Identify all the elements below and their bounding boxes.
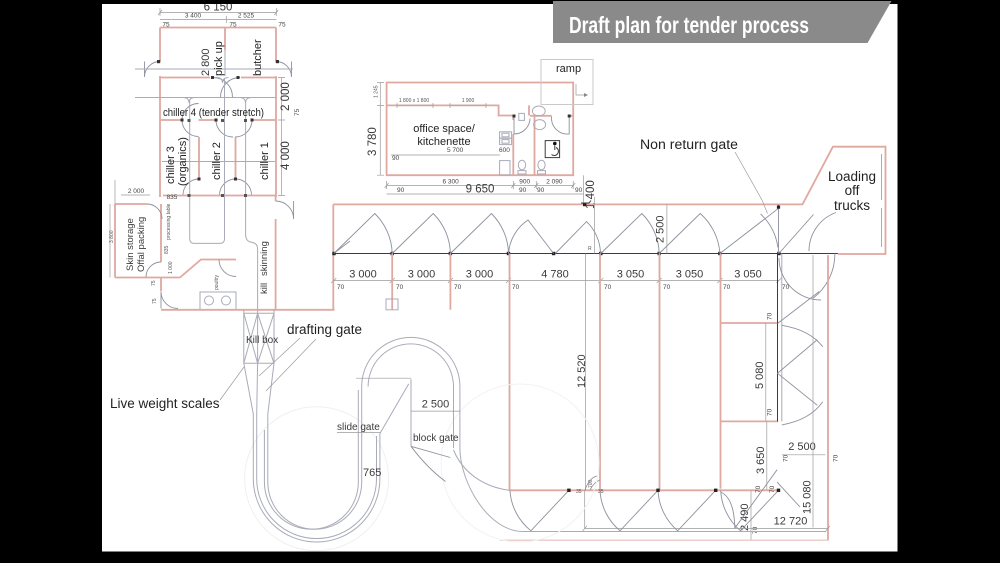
svg-text:2 500: 2 500 [422, 399, 450, 411]
svg-text:Offal packing: Offal packing [136, 217, 147, 272]
svg-text:Skin storage: Skin storage [125, 218, 136, 271]
svg-text:835: 835 [167, 194, 178, 201]
svg-text:3 050: 3 050 [734, 269, 762, 281]
svg-text:70: 70 [783, 454, 790, 462]
svg-text:2 525: 2 525 [238, 13, 255, 20]
svg-text:70: 70 [769, 485, 776, 493]
svg-text:3 000: 3 000 [408, 269, 436, 281]
svg-text:Non return gate: Non return gate [640, 137, 738, 152]
svg-text:12 720: 12 720 [774, 516, 808, 528]
svg-text:chiller 4 (tender stretch): chiller 4 (tender stretch) [163, 107, 264, 119]
svg-text:75: 75 [278, 22, 286, 29]
svg-text:75: 75 [162, 22, 170, 29]
svg-text:75: 75 [294, 108, 301, 116]
svg-text:70: 70 [833, 454, 840, 462]
svg-text:835: 835 [164, 245, 170, 254]
svg-text:1 245: 1 245 [374, 85, 380, 98]
svg-text:chiller 2: chiller 2 [211, 142, 223, 180]
svg-text:70: 70 [512, 284, 520, 291]
svg-text:70: 70 [454, 284, 462, 291]
svg-text:3 400: 3 400 [185, 13, 202, 20]
svg-text:1 900: 1 900 [462, 98, 475, 104]
svg-text:poultry: poultry [214, 274, 220, 290]
svg-text:3 050: 3 050 [617, 269, 645, 281]
svg-text:butcher: butcher [252, 39, 264, 76]
svg-text:ramp: ramp [556, 63, 581, 75]
svg-text:3 050: 3 050 [676, 269, 704, 281]
svg-text:90: 90 [519, 187, 527, 194]
svg-text:2 000: 2 000 [280, 82, 292, 111]
svg-text:kill: kill [259, 283, 270, 294]
svg-text:70: 70 [767, 408, 774, 416]
svg-text:4 000: 4 000 [280, 141, 292, 170]
svg-text:15 080: 15 080 [802, 480, 814, 514]
svg-text:90: 90 [397, 187, 405, 194]
svg-text:4 780: 4 780 [541, 269, 569, 281]
svg-text:2 500: 2 500 [655, 215, 667, 243]
svg-text:Draft plan for tender process: Draft plan for tender process [569, 12, 809, 38]
svg-text:35: 35 [576, 489, 582, 495]
svg-text:Kill box: Kill box [246, 335, 278, 346]
svg-text:70: 70 [767, 312, 774, 320]
svg-text:700: 700 [588, 479, 594, 488]
svg-text:70: 70 [752, 526, 759, 534]
svg-text:Loading: Loading [828, 169, 876, 184]
svg-text:trucks: trucks [834, 198, 870, 213]
svg-text:70: 70 [396, 284, 404, 291]
svg-text:70: 70 [337, 284, 345, 291]
svg-text:75: 75 [152, 298, 158, 304]
svg-text:drafting gate: drafting gate [287, 322, 362, 337]
svg-text:slide gate: slide gate [337, 422, 380, 433]
svg-text:75: 75 [229, 22, 237, 29]
svg-text:2 500: 2 500 [788, 441, 816, 453]
svg-text:5 700: 5 700 [447, 147, 464, 154]
svg-text:(organics): (organics) [177, 137, 189, 186]
svg-text:90: 90 [392, 155, 400, 162]
svg-text:3 780: 3 780 [367, 127, 379, 156]
svg-text:70: 70 [663, 284, 671, 291]
svg-text:office space/: office space/ [413, 123, 476, 135]
svg-text:75: 75 [151, 280, 157, 286]
svg-text:2 090: 2 090 [546, 178, 563, 185]
svg-text:chiller 3: chiller 3 [165, 146, 177, 184]
svg-text:765: 765 [363, 467, 381, 479]
svg-text:3 000: 3 000 [466, 269, 494, 281]
svg-text:chiller 1: chiller 1 [259, 142, 271, 180]
svg-text:2 800: 2 800 [200, 48, 212, 76]
svg-text:2 000: 2 000 [128, 188, 145, 195]
svg-text:900: 900 [519, 178, 530, 185]
svg-text:90: 90 [575, 187, 583, 194]
svg-text:R: R [588, 246, 592, 252]
svg-text:70: 70 [604, 284, 612, 291]
svg-text:35: 35 [598, 489, 604, 495]
svg-text:6 300: 6 300 [442, 178, 459, 185]
svg-text:block gate: block gate [413, 433, 459, 444]
svg-text:600: 600 [499, 147, 510, 154]
svg-text:90: 90 [537, 187, 545, 194]
svg-text:Live weight scales: Live weight scales [110, 396, 220, 411]
svg-text:1 000: 1 000 [168, 261, 174, 274]
svg-text:3 650: 3 650 [755, 446, 767, 474]
svg-text:skinning: skinning [259, 241, 270, 276]
svg-text:70: 70 [723, 284, 731, 291]
svg-text:5 080: 5 080 [754, 361, 766, 389]
svg-text:processing table: processing table [166, 203, 172, 240]
svg-text:pick up: pick up [213, 41, 225, 76]
svg-text:1 800 x 1 800: 1 800 x 1 800 [399, 98, 430, 104]
svg-text:off: off [845, 183, 860, 198]
svg-text:12 520: 12 520 [576, 354, 588, 388]
svg-text:3 000: 3 000 [349, 269, 377, 281]
